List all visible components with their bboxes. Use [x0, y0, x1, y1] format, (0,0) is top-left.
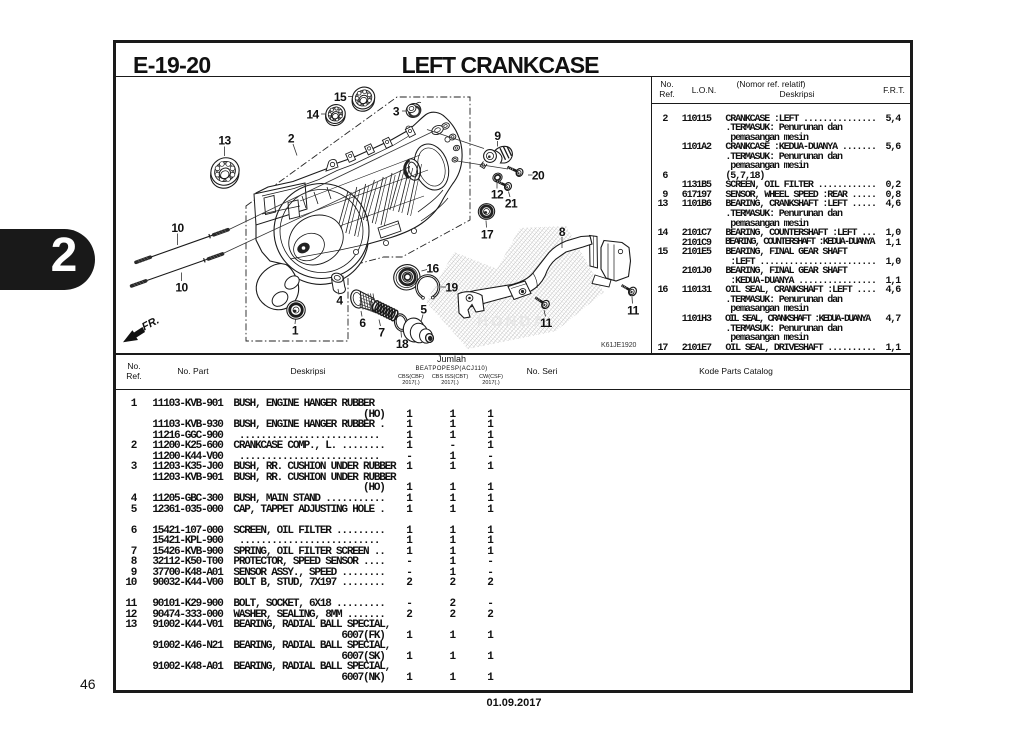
svg-text:20: 20 — [532, 168, 545, 182]
svg-text:9: 9 — [494, 129, 501, 143]
svg-text:5: 5 — [420, 302, 427, 316]
svg-text:6: 6 — [359, 316, 366, 330]
svg-text:11: 11 — [540, 316, 553, 330]
svg-text:12: 12 — [491, 187, 504, 201]
svg-text:FR.: FR. — [140, 315, 161, 334]
svg-text:11: 11 — [627, 303, 640, 317]
svg-text:13: 13 — [218, 133, 231, 147]
svg-text:10: 10 — [175, 280, 188, 294]
svg-text:21: 21 — [505, 196, 518, 210]
svg-text:10: 10 — [171, 221, 184, 235]
svg-text:2: 2 — [288, 131, 295, 145]
svg-text:18: 18 — [396, 337, 409, 351]
svg-text:K61JE1920: K61JE1920 — [601, 342, 637, 349]
svg-text:19: 19 — [445, 280, 458, 294]
svg-text:16: 16 — [426, 261, 439, 275]
svg-text:1: 1 — [292, 323, 299, 337]
svg-text:15: 15 — [334, 90, 347, 104]
svg-text:14: 14 — [306, 107, 319, 121]
svg-text:4: 4 — [336, 293, 343, 307]
svg-text:17: 17 — [481, 227, 494, 241]
svg-text:HONDA: HONDA — [477, 313, 547, 330]
svg-text:8: 8 — [559, 225, 566, 239]
svg-text:7: 7 — [378, 325, 385, 339]
svg-text:3: 3 — [393, 104, 400, 118]
